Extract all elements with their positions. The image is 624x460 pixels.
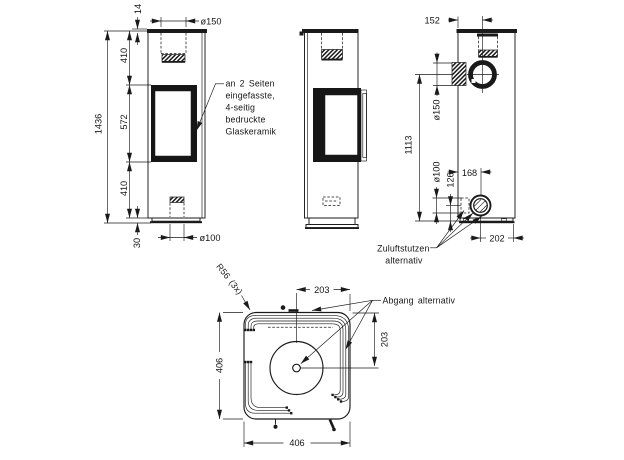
side-plinth [305,218,359,229]
glass-note-line3: 4-seitig [226,103,256,113]
stove-dimension-drawing: 1436 410 572 410 14 ø150 [0,0,624,460]
dim-front-plinth: 30 [132,206,142,248]
dim-rear-side-flue: ø150 [432,53,453,121]
technical-drawing: 1436 410 572 410 14 ø150 [0,0,624,460]
front-plinth [150,218,202,223]
dim-rear-intake-dia: ø100 [432,162,462,224]
side-flue-collar [322,33,343,61]
front-flue-collar [161,33,186,63]
air-inlet-note-line2: alternativ [385,256,423,266]
dim-front-intake: ø100 [158,224,220,243]
glass-note-line2: eingefasste, [226,91,275,101]
dim-rear-base-offset: 202 [470,216,524,243]
dim-front-chain: 410 572 410 [119,31,151,218]
dim-top-depth: 406 [215,313,244,420]
dim-top-to-center: 203 [353,313,390,366]
front-total-height-label: 1436 [94,114,104,134]
outlet-note: Abgang alternativ [301,295,456,363]
rear-flue-height-label: 1113 [404,135,414,154]
top-outlet-mark [289,309,299,312]
front-intake-label: ø100 [200,233,221,243]
top-screw [281,305,286,310]
rear-intake-offset-label: 168 [462,168,477,178]
bottom-panel-strips [244,361,292,415]
rear-body-outline [458,31,515,218]
front-door-glass [155,91,191,156]
rear-base-offset-label: 202 [489,233,504,243]
air-inlet-note-line1: Zuluftstutzen [377,244,429,254]
side-air-stub [323,197,340,206]
rear-top-plate [457,29,518,33]
rear-top-collar [479,37,498,58]
outlet-note-label: Abgang alternativ [383,295,456,305]
top-center-right-label: 203 [314,285,329,295]
dim-front-plate: 14 [132,4,147,45]
feet [274,419,336,431]
side-window [313,88,367,162]
side-air-stub-hidden [461,198,469,213]
front-plinth-label: 30 [132,238,142,248]
front-window-base-label: 410 [119,181,129,196]
dim-top-width: 406 [244,422,350,449]
top-view: 203 203 406 406 R56 (3x) [214,262,455,449]
glass-note-line5: Glaskeramik [226,127,277,137]
corner-radius-label: R56 (3x) [214,262,244,297]
glass-note-line1: an 2 Seiten [226,79,275,89]
top-body-outline [244,313,350,420]
front-top-plate [147,29,207,33]
rear-intake-dia-label: ø100 [432,162,442,183]
side-top-plate [302,29,359,33]
front-air-stub [170,197,184,217]
dim-rear-intake-height: 126 [446,172,462,232]
top-depth-label: 406 [215,358,225,373]
side-flue-stub [452,63,466,86]
front-flue-label: ø150 [201,16,222,26]
rear-flue-offset-label: 152 [425,15,440,25]
dim-top-center-right: 203 [297,285,351,311]
dim-front-flue: ø150 [150,16,221,27]
glass-note-line4: bedruckte [226,115,266,125]
rear-view: 152 ø150 1113 ø100 [377,15,524,265]
front-window-height-label: 572 [119,114,129,129]
rear-air-intake [471,196,491,216]
front-plate-label: 14 [133,4,143,14]
rear-intake-height-label: 126 [446,172,456,187]
top-to-center-label: 203 [380,332,390,347]
top-flue-center [293,364,301,372]
glass-note: an 2 Seiten eingefasste, 4-seitig bedruc… [197,79,277,137]
corner-radius-note: R56 (3x) [214,262,250,310]
front-top-window-label: 410 [119,48,129,63]
side-view [300,29,367,229]
top-width-label: 406 [289,438,304,448]
rear-side-flue-label: ø150 [432,100,442,121]
front-view: 1436 410 572 410 14 ø150 [94,4,277,248]
